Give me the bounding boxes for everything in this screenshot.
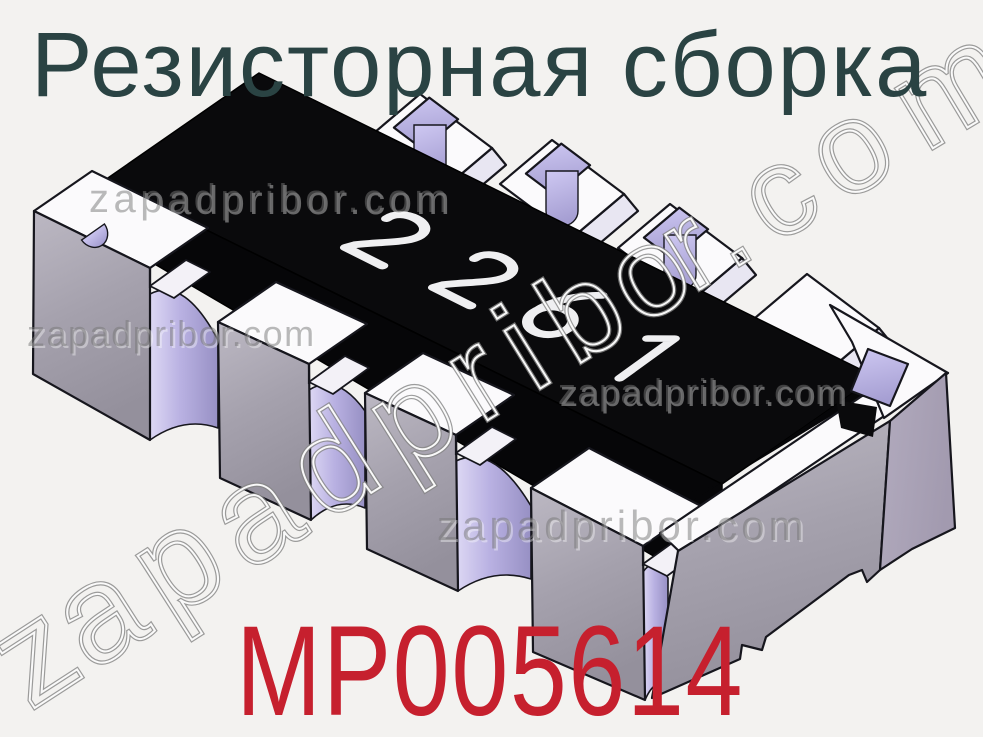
svg-text:Резисторная сборка: Резисторная сборка <box>31 14 928 116</box>
svg-text:zapadpribor.com: zapadpribor.com <box>437 502 808 549</box>
svg-text:zapadpribor.com: zapadpribor.com <box>89 177 452 221</box>
svg-text:zapadpribor.com: zapadpribor.com <box>27 313 316 354</box>
svg-text:МР005614: МР005614 <box>236 599 744 737</box>
